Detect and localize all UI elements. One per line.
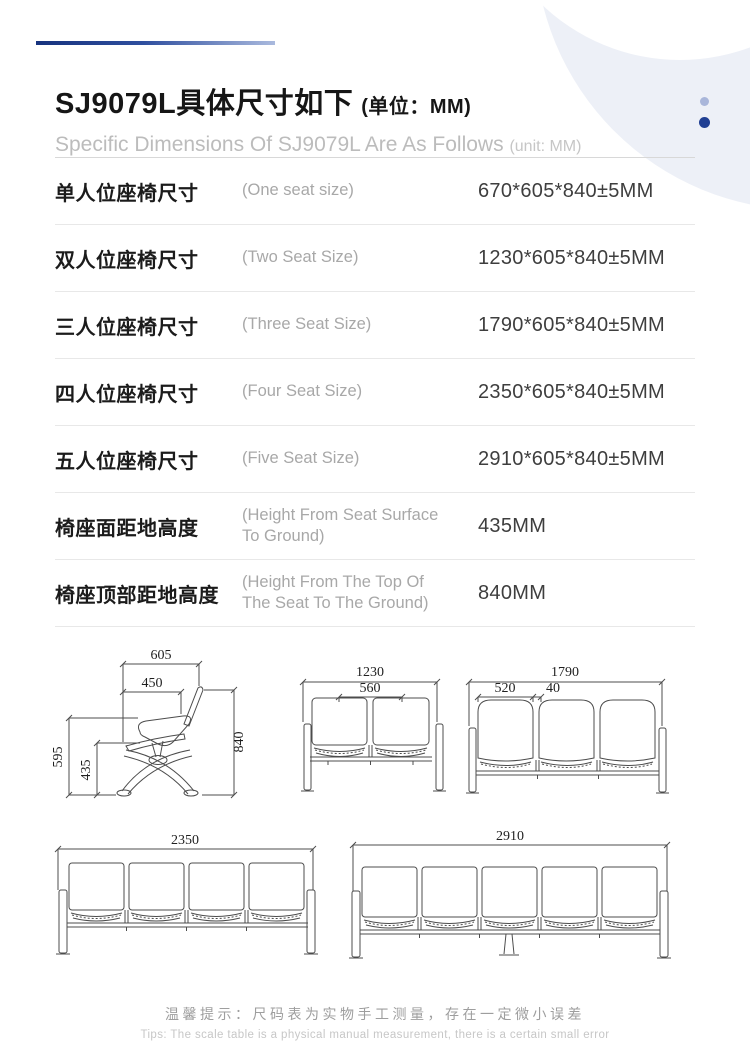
spec-value: 2910*605*840±5MM	[478, 448, 695, 471]
three-seat-front-diagram: 1790 520 40	[463, 660, 673, 800]
five-seat-front-diagram: 2910	[348, 833, 673, 963]
spec-row-four-seat: 四人位座椅尺寸 (Four Seat Size) 2350*605*840±5M…	[55, 359, 695, 426]
spec-label-en: (Height From The Top Of The Seat To The …	[242, 572, 478, 614]
spec-value: 840MM	[478, 582, 695, 605]
spec-label-zh: 三人位座椅尺寸	[55, 311, 242, 340]
four-seat-front-diagram: 2350	[50, 835, 320, 960]
dim-label-605: 605	[151, 648, 172, 663]
spec-label-zh: 五人位座椅尺寸	[55, 445, 242, 474]
tips: 温馨提示：尺码表为实物手工测量，存在一定微小误差 Tips: The scale…	[0, 1004, 750, 1041]
single-seat-side-diagram: 605 450 840 595 435	[52, 644, 252, 824]
spec-label-en: (Three Seat Size)	[242, 314, 478, 335]
spec-value: 1230*605*840±5MM	[478, 247, 695, 270]
spec-row-five-seat: 五人位座椅尺寸 (Five Seat Size) 2910*605*840±5M…	[55, 426, 695, 493]
dim-label-840: 840	[232, 732, 247, 753]
spec-label-en: (Two Seat Size)	[242, 247, 478, 268]
chair-outline	[117, 687, 203, 796]
page-subtitle-unit: (unit: MM)	[509, 138, 581, 155]
dim-label-1790: 1790	[551, 665, 579, 680]
dim-label-520: 520	[495, 681, 516, 696]
header: SJ9079L具体尺寸如下(单位：MM) Specific Dimensions…	[55, 80, 695, 157]
spec-label-en: (One seat size)	[242, 180, 478, 201]
two-seat-front-diagram: 1230 560	[295, 660, 460, 800]
spec-row-back-height: 椅座顶部距地高度 (Height From The Top Of The Sea…	[55, 560, 695, 627]
bench-outline	[349, 867, 671, 958]
spec-label-en: (Four Seat Size)	[242, 381, 478, 402]
spec-row-seat-height: 椅座面距地高度 (Height From Seat Surface To Gro…	[55, 493, 695, 560]
dim-label-1230: 1230	[356, 665, 384, 680]
spec-label-en: (Five Seat Size)	[242, 448, 478, 469]
dim-label-595: 595	[51, 747, 66, 768]
spec-value: 435MM	[478, 515, 695, 538]
dimension-lines: 1790 520 40	[466, 665, 665, 726]
dimension-lines: 605 450 840 595 435	[51, 648, 247, 798]
spec-table: 单人位座椅尺寸 (One seat size) 670*605*840±5MM …	[55, 157, 695, 627]
spec-label-zh: 单人位座椅尺寸	[55, 177, 242, 206]
spec-label-zh: 双人位座椅尺寸	[55, 244, 242, 273]
page-subtitle: Specific Dimensions Of SJ9079L Are As Fo…	[55, 133, 695, 157]
page-subtitle-text: Specific Dimensions Of SJ9079L Are As Fo…	[55, 133, 504, 156]
dim-label-40: 40	[546, 681, 560, 696]
spec-label-zh: 四人位座椅尺寸	[55, 378, 242, 407]
decorative-dot-dark	[699, 117, 710, 128]
page-title-text: SJ9079L具体尺寸如下	[55, 88, 353, 120]
bench-outline	[466, 700, 669, 793]
spec-sheet-page: SJ9079L具体尺寸如下(单位：MM) Specific Dimensions…	[0, 0, 750, 1053]
dimension-lines: 2910	[350, 829, 670, 891]
spec-value: 670*605*840±5MM	[478, 180, 695, 203]
dim-label-450: 450	[142, 676, 163, 691]
spec-label-zh: 椅座顶部距地高度	[55, 579, 242, 608]
bench-outline	[56, 863, 318, 954]
dim-label-2350: 2350	[171, 833, 199, 848]
spec-value: 1790*605*840±5MM	[478, 314, 695, 337]
tips-en: Tips: The scale table is a physical manu…	[0, 1029, 750, 1041]
technical-drawings: 605 450 840 595 435	[0, 626, 750, 1006]
dimension-lines: 2350	[55, 833, 316, 890]
spec-row-one-seat: 单人位座椅尺寸 (One seat size) 670*605*840±5MM	[55, 158, 695, 225]
spec-row-three-seat: 三人位座椅尺寸 (Three Seat Size) 1790*605*840±5…	[55, 292, 695, 359]
dim-label-560: 560	[360, 681, 381, 696]
bench-outline	[301, 698, 446, 791]
header-accent-line	[36, 41, 275, 45]
dimension-lines: 1230 560	[300, 665, 440, 722]
decorative-dot-light	[700, 97, 709, 106]
tips-zh: 温馨提示：尺码表为实物手工测量，存在一定微小误差	[0, 1004, 750, 1024]
spec-row-two-seat: 双人位座椅尺寸 (Two Seat Size) 1230*605*840±5MM	[55, 225, 695, 292]
spec-value: 2350*605*840±5MM	[478, 381, 695, 404]
spec-label-en: (Height From Seat Surface To Ground)	[242, 505, 478, 547]
spec-label-zh: 椅座面距地高度	[55, 512, 242, 541]
page-title-unit: (单位：MM)	[361, 96, 471, 118]
dim-label-435: 435	[79, 760, 94, 781]
page-title: SJ9079L具体尺寸如下(单位：MM)	[55, 80, 695, 122]
dim-label-2910: 2910	[496, 829, 524, 844]
